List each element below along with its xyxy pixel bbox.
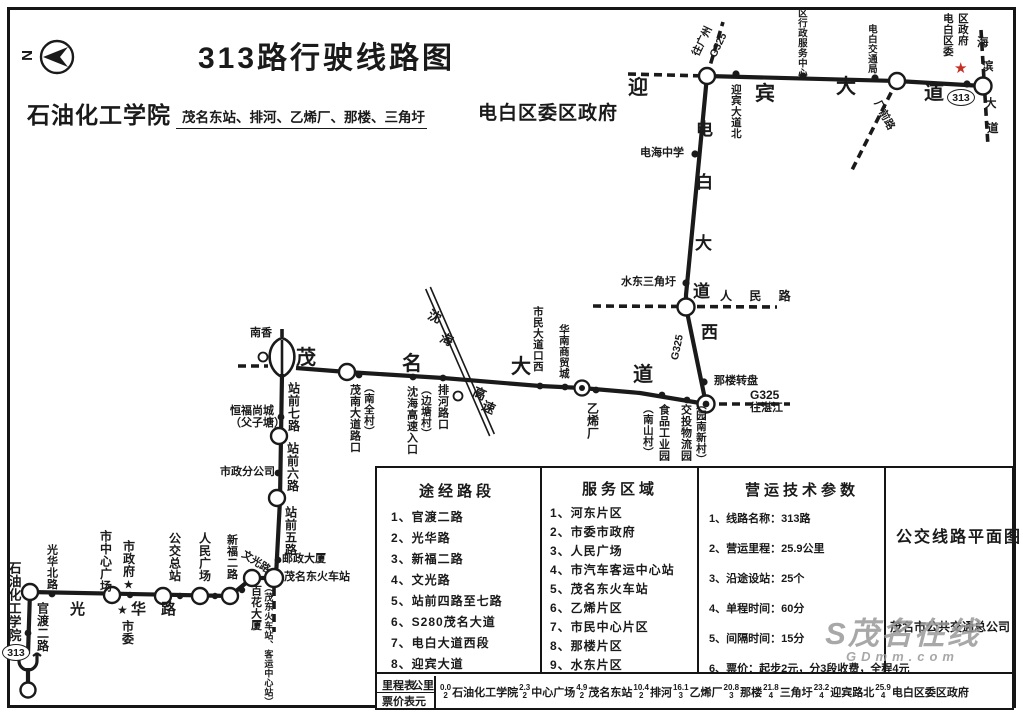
stop-label-paihe-lukou: 排河路口 (436, 384, 447, 430)
stop-label-quzhengfu: 区政府 (957, 13, 968, 46)
service-area-item: 7、市民中心片区 (550, 618, 649, 635)
stop-label-biantangcun: （边塘村） (420, 384, 431, 439)
road-char-guanghua-2: 华 (131, 602, 146, 618)
compass-icon (41, 41, 73, 73)
road-char-dianbai-5: 西 (701, 324, 718, 342)
route-section-item: 8、迎宾大道 (391, 655, 464, 672)
road-char-yingbin-2: 宾 (755, 84, 775, 105)
road-char-maoming-1: 茂 (296, 348, 316, 369)
service-area-item: 8、那楼片区 (550, 637, 623, 654)
road-label-renmin-lu: 人 民 路 (720, 290, 798, 302)
interchange-teardrop (270, 338, 295, 377)
stop-label-jiaotou-wuliuyuan: 交投物流园 (679, 404, 690, 462)
stop-label-hengfu-shangcheng: 恒福尚城 (230, 406, 274, 417)
road-char-guanghua-1: 光 (70, 602, 85, 618)
stop-label-yixichang: 乙烯厂 (586, 402, 598, 440)
road-char-dianbai-4: 道 (693, 283, 710, 301)
stop-label-fuzitang: （父子塘） (230, 418, 285, 429)
subtitle-origin: 石油化工学院 (27, 96, 171, 130)
stop-label-gongjiao-zongzhan: 公交总站 (168, 532, 180, 582)
road-label-zhanqian7: 站前七路 (287, 382, 299, 432)
road-label-zhanqian6: 站前六路 (286, 442, 298, 492)
road-char-yingbin-1: 迎 (628, 78, 648, 99)
road-char-haibin-3: 大 (985, 99, 997, 111)
watermark: S茂名在线 GDmm.com (795, 618, 1010, 664)
compass-n-label: N (19, 50, 36, 61)
stop-label-youzheng-dasha: 邮政大厦 (282, 554, 326, 565)
table-col3-header: 营运技术参数 (745, 479, 859, 500)
fare-table-label: 票价表 (382, 693, 415, 709)
table-divider-1 (540, 468, 542, 674)
stop-label-nanxiang: 南香 (250, 328, 272, 339)
stop-label-shiyou-huagong: 石油化工学院 (7, 561, 21, 642)
road-char-dianbai-1: 电 (696, 121, 713, 139)
page-title: 313路行驶线路图 (198, 33, 455, 77)
stop-label-dianbai-jiaotongju: 电白交通局 (866, 24, 876, 74)
service-area-item: 9、水东片区 (550, 656, 623, 673)
info-table: 途经路段 1、官渡二路 2、光华路 3、新福二路 4、文光路 5、站前四路至七路… (375, 466, 1014, 710)
stop-label-guanghua-beilu: 光华北路 (45, 544, 56, 590)
service-area-item: 6、乙烯片区 (550, 599, 623, 616)
subtitle-destination: 电白区委区政府 (478, 98, 618, 125)
table-col2-header: 服务区域 (582, 478, 658, 499)
stop-label-shipin-gongyeyuan: 食品工业园 (657, 404, 668, 462)
stop-label-shizheng-fengongsi: 市政分公司 (220, 467, 275, 478)
road-char-haibin-4: 道 (987, 124, 999, 136)
service-area-item: 4、市汽车客运中心站 (550, 561, 675, 578)
route-section-item: 4、文光路 (391, 571, 451, 588)
road-label-zhanqian5: 站前五路 (284, 506, 296, 556)
route-section-item: 2、光华路 (391, 529, 451, 546)
stop-label-dianhai-zhongxue: 电海中学 (640, 148, 684, 159)
stop-label-nalou-zhuanpan: 那楼转盘 (714, 376, 758, 387)
stop-label-dianbai-quwei: 电白区委 (942, 13, 953, 57)
route-313-badge-west: 313 (2, 644, 30, 661)
service-area-item: 5、茂名东火车站 (550, 580, 649, 597)
watermark-domain: GDmm.com (795, 649, 1010, 664)
stop-label-shizhengfu: 市政府★ (122, 540, 134, 592)
watermark-logo: S茂名在线 (795, 618, 1010, 649)
road-label-g325-east: G325 (750, 389, 779, 401)
table-divider-2 (697, 468, 699, 674)
route-section-item: 5、站前四路至七路 (391, 592, 503, 609)
fare-strip: 里程表 公里 票价表 元 0.02石油化工学院 2.32中心广场 4.92茂名东… (377, 676, 1012, 708)
shiwei-star-icon: ★ (117, 604, 128, 616)
road-char-dianbai-3: 大 (695, 235, 712, 253)
road-char-maoming-3: 大 (511, 357, 531, 378)
route-section-item: 6、S280茂名大道 (391, 613, 496, 630)
road-char-dianbai-2: 白 (696, 174, 713, 192)
road-label-to-zhanjiang: 往湛江 (750, 403, 783, 414)
stop-label-yingbin-dadao-bei: 迎宾大道北 (730, 84, 741, 139)
road-char-haibin-1: 海 (977, 38, 989, 50)
mileage-table-label: 里程表 (382, 677, 415, 693)
route-map-sheet: N 313路行驶线路图 石油化工学院 茂名东站、排河、乙烯厂、那楼、三角圩 电白… (0, 0, 1023, 714)
route-section-item: 1、官渡二路 (391, 508, 464, 525)
government-star-icon: ★ (954, 61, 967, 77)
stop-label-xinfu-erlu: 新福二路 (225, 534, 236, 580)
table-fare-divider (377, 672, 1012, 674)
tech-param-item: 1、线路名称：313路 (709, 510, 810, 526)
road-char-maoming-4: 道 (633, 365, 653, 386)
tech-param-item: 2、营运里程：25.9公里 (709, 540, 825, 556)
stop-label-shuidong-sanjiaoxu: 水东三角圩 (621, 277, 676, 288)
road-char-yingbin-4: 道 (924, 83, 944, 104)
stop-label-huanan-shangmaocheng: 华南商贸城 (558, 324, 569, 379)
stop-label-shizhongxin-guangchang: 市中心广场 (99, 530, 111, 593)
stop-label-maomingdong-huochezhan: 茂名东火车站 (284, 572, 350, 583)
road-char-guanghua-3: 路 (161, 602, 176, 618)
stop-label-baihua-dasha: 百花大厦 (249, 585, 260, 631)
service-area-item: 2、市委市政府 (550, 523, 636, 540)
road-char-haibin-2: 滨 (982, 62, 994, 74)
road-char-maoming-2: 名 (402, 354, 422, 375)
stop-label-nanquancun: （南全村） (363, 382, 374, 437)
stop-label-qu-xingzheng-fuwu-zhongxin: 区行政服务中心 (796, 8, 806, 78)
road-char-yingbin-3: 大 (836, 77, 856, 98)
tech-param-item: 4、单程时间：60分 (709, 600, 804, 616)
table-col1-header: 途经路段 (419, 480, 495, 501)
stop-label-maonan-dadao-lukou: 茂南大道路口 (348, 384, 359, 453)
stop-label-shenhai-rukou: 沈海高速入口 (405, 386, 416, 455)
service-area-item: 1、河东片区 (550, 504, 623, 521)
tech-param-item: 3、沿途设站：25个 (709, 570, 804, 586)
stop-label-renmin-guangchang: 人民广场 (198, 532, 210, 582)
table-col4-title: 公交线路平面图 (896, 523, 1022, 547)
stop-label-shiwei: 市委 (121, 620, 133, 645)
route-313-badge-east: 313 (947, 89, 975, 106)
stop-label-yuannan-xincun: （园南新村） (695, 399, 706, 465)
stop-label-maodong-keyun: （茂东火车站、客运中心站） (263, 583, 272, 707)
tech-param-item: 5、间隔时间：15分 (709, 630, 804, 646)
service-area-item: 3、人民广场 (550, 542, 623, 559)
stop-label-nanshancun: （南山村） (642, 403, 653, 458)
fare-line: 0.02石油化工学院 2.32中心广场 4.92茂名东站 10.42排河 16.… (439, 676, 1010, 708)
subtitle-via-stops: 茂名东站、排河、乙烯厂、那楼、三角圩 (176, 106, 427, 129)
mileage-unit-label: 公里 (412, 677, 434, 693)
route-section-item: 7、电白大道西段 (391, 634, 490, 651)
fare-unit-label: 元 (415, 693, 426, 709)
road-label-guandu-erlu: 官渡二路 (36, 602, 48, 652)
route-section-item: 3、新福二路 (391, 550, 464, 567)
stop-label-shimin-dadaokou-xi: 市民大道口西 (532, 306, 543, 372)
